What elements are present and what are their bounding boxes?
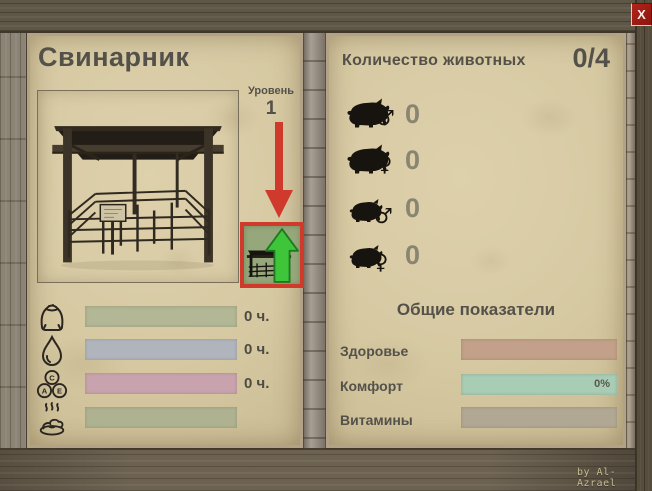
- wood-frame-bottom: [0, 448, 652, 491]
- vitamins-bar: [461, 407, 617, 428]
- wood-frame-left: [0, 33, 27, 448]
- close-button[interactable]: X: [631, 3, 652, 26]
- level-value: 1: [236, 98, 306, 120]
- wood-frame-right-outer: [635, 0, 652, 491]
- adult-female-pig-count: 0: [405, 146, 420, 174]
- health-label: Здоровье: [340, 343, 408, 359]
- vitamins-duration-label: 0 ч.: [244, 373, 269, 394]
- svg-text:A: A: [42, 386, 48, 395]
- svg-text:C: C: [49, 373, 55, 382]
- adult-male-pig-count: 0: [405, 100, 420, 128]
- female-gender-icon: ♀: [373, 252, 388, 273]
- female-gender-icon: ♀: [377, 154, 392, 175]
- attention-arrow-down-icon: [264, 122, 294, 220]
- page-title: Свинарник: [38, 42, 189, 73]
- water-duration-bar: [85, 339, 237, 360]
- male-gender-icon: ♂: [374, 206, 393, 227]
- wood-frame-divider: [303, 33, 326, 448]
- manure-duration-bar: [85, 407, 237, 428]
- young-male-pig-count: 0: [405, 194, 420, 222]
- health-bar: [461, 339, 617, 360]
- feed-sack-icon: [36, 297, 68, 333]
- stats-section-title: Общие показатели: [329, 300, 623, 320]
- feed-duration-bar: [85, 306, 237, 327]
- upgrade-arrow-up-icon: [265, 227, 299, 284]
- upgrade-building-button[interactable]: [240, 222, 304, 288]
- svg-text:E: E: [57, 386, 62, 395]
- young-female-pig-count: 0: [405, 241, 420, 269]
- feed-duration-label: 0 ч.: [244, 306, 269, 327]
- building-panel: Свинарник: [27, 33, 303, 448]
- animal-count-title: Количество животных: [342, 52, 526, 70]
- close-icon: X: [637, 7, 646, 22]
- building-preview: [37, 90, 239, 283]
- manure-icon: [36, 401, 68, 437]
- vitamins-duration-bar: [85, 373, 237, 394]
- male-gender-icon: ♂: [376, 108, 395, 129]
- pig-shelter-illustration: [38, 91, 238, 282]
- water-duration-label: 0 ч.: [244, 339, 269, 360]
- water-drop-icon: [36, 333, 68, 369]
- comfort-bar: 0%: [461, 374, 617, 395]
- animal-count-total: 0/4: [572, 43, 610, 74]
- vitamins-label: Витамины: [340, 412, 413, 428]
- vitamins-icon: C A E: [36, 367, 68, 403]
- wood-frame-top: [0, 0, 652, 33]
- comfort-label: Комфорт: [340, 378, 403, 394]
- level-label: Уровень: [236, 85, 306, 97]
- animals-panel: Количество животных 0/4 ♂ 0 ♀ 0 ♂ 0 ♀ 0: [326, 33, 626, 448]
- author-credit: by Al-Azrael: [577, 467, 652, 489]
- pigsty-dialog: X Свинарник: [0, 0, 652, 491]
